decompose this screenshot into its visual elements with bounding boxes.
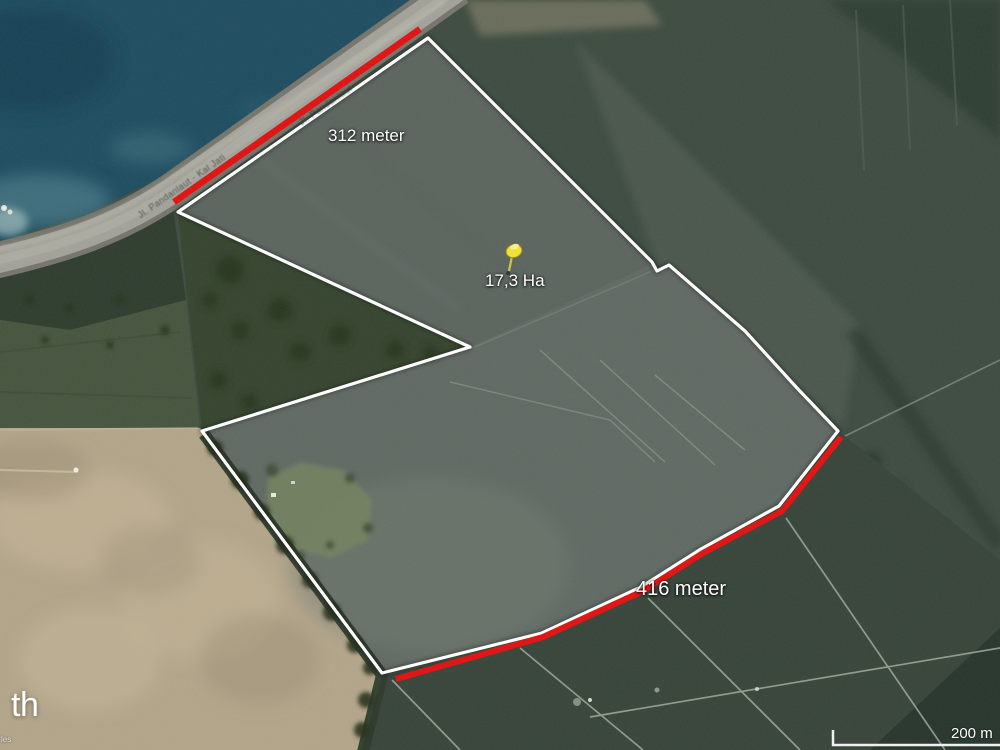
imagery-grain xyxy=(0,0,1000,750)
map-viewport[interactable]: 312 meter 17,3 Ha 416 meter 200 m th les… xyxy=(0,0,1000,750)
scale-bar-label: 200 m xyxy=(951,725,993,742)
copyright-fragment: les xyxy=(1,735,11,744)
area-label: 17,3 Ha xyxy=(485,271,545,291)
measurement-label-312: 312 meter xyxy=(328,126,405,146)
measurement-label-416: 416 meter xyxy=(636,578,726,601)
earth-logo-fragment: th xyxy=(11,686,38,725)
satellite-map[interactable] xyxy=(0,0,1000,750)
